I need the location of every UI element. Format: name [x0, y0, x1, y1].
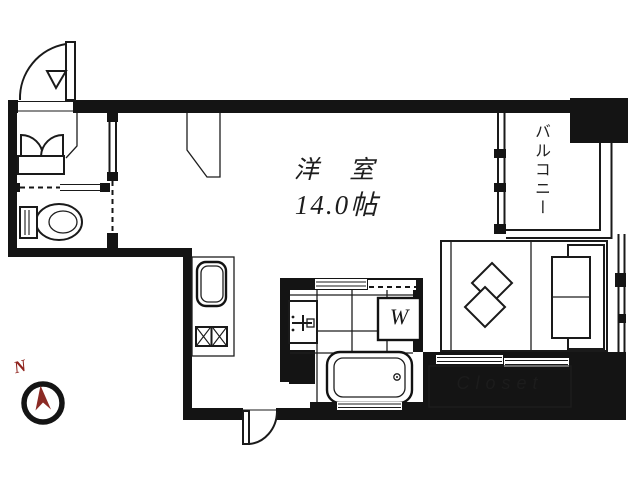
washing-machine-label: W	[378, 304, 420, 330]
floor-plan-drawing	[0, 0, 632, 495]
sofa-icon	[552, 245, 604, 349]
bath-dashed-opening	[368, 280, 416, 290]
bath-sliding-door-icon	[315, 279, 367, 289]
toilet-icon	[20, 204, 82, 240]
floor-plan: 洋 室 14.0帖 バルコニー W Closet N	[0, 0, 632, 495]
closet-label: Closet	[429, 373, 571, 394]
room-size-label: 14.0帖	[262, 183, 412, 222]
washbasin-icon	[289, 301, 317, 343]
balcony-label: バルコニー	[522, 104, 552, 236]
room-label: 洋 室	[270, 150, 410, 186]
kitchen-sink-icon	[197, 262, 226, 306]
compass-icon	[24, 384, 62, 422]
gas-stove-icon	[196, 327, 227, 346]
bathtub-icon	[327, 352, 412, 403]
bath-threshold	[337, 402, 402, 410]
